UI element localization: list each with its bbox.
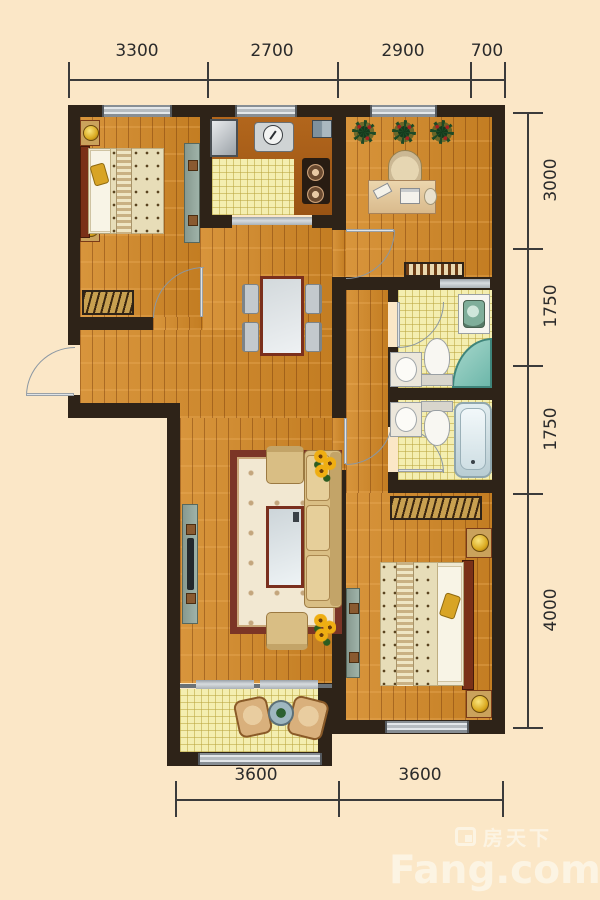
- flower-pot-icon: [314, 614, 336, 646]
- mouse-icon: [424, 188, 437, 205]
- entrance-door-leaf: [26, 393, 74, 396]
- bathtub-drain: [471, 460, 475, 464]
- dining-table-icon: [260, 276, 304, 356]
- dimension-tick: [513, 112, 543, 114]
- dimension-label: 3000: [542, 150, 560, 210]
- sink-basin: [395, 357, 417, 382]
- plant-icon: [392, 120, 416, 144]
- dimension-label: 700: [437, 42, 537, 60]
- burner-icon: [307, 164, 324, 181]
- study-door-leaf: [346, 229, 394, 232]
- dimension-tick: [68, 62, 70, 98]
- plant-icon: [352, 120, 376, 144]
- wardrobe-icon: [184, 143, 200, 243]
- window-kitchen: [235, 105, 297, 117]
- bathroom-south-door-leaf: [398, 469, 443, 472]
- wall-living-right-upper: [332, 278, 346, 418]
- tv-icon: [187, 538, 194, 590]
- wall-entry-step: [68, 403, 180, 418]
- wall-bathroom-left-4: [388, 472, 398, 480]
- chair-seat: [242, 322, 259, 352]
- toilet-icon: [424, 410, 450, 446]
- sink-basin: [395, 407, 417, 432]
- door-opening-patch: [153, 317, 203, 330]
- wall-cabinet-icon: [312, 120, 332, 138]
- dimension-tick: [502, 781, 504, 817]
- window-balcony: [198, 753, 322, 765]
- kitchen-sliding-door: [232, 217, 312, 225]
- floor-plan-page: 3300 2700 2900 700 3000 1750 1750 4000 3…: [0, 0, 600, 900]
- burner-icon: [307, 186, 324, 203]
- dimension-label: 3600: [370, 766, 470, 784]
- dimension-line: [527, 112, 529, 728]
- dimension-label: 2700: [222, 42, 322, 60]
- dimension-tick: [513, 493, 543, 495]
- plant-icon: [430, 120, 454, 144]
- printer-icon: [400, 188, 420, 204]
- dimension-tick: [513, 248, 543, 250]
- dining-chair-icon: [305, 322, 322, 352]
- hallway-door-leaf: [344, 418, 347, 464]
- dimension-tick: [470, 62, 472, 98]
- dimension-tick: [337, 62, 339, 98]
- sofa-cushion: [306, 505, 330, 551]
- dining-chair-icon: [305, 284, 322, 314]
- armchair-icon: [266, 612, 308, 650]
- dimension-label: 3600: [206, 766, 306, 784]
- window-bedroom-south: [385, 721, 469, 733]
- flower-pot-icon: [314, 450, 336, 482]
- wall-left-upper: [68, 105, 80, 345]
- blanket-stripe: [116, 148, 132, 234]
- dining-chair-icon: [242, 322, 259, 352]
- bathroom-north-transom: [440, 279, 490, 288]
- dimension-label: 1750: [542, 276, 560, 336]
- dimension-tick: [513, 727, 543, 729]
- pillow-icon: [436, 566, 462, 682]
- door-opening-patch: [332, 230, 346, 278]
- kitchen-floor: [212, 159, 294, 215]
- dimension-label: 4000: [542, 580, 560, 640]
- lamp-icon: [471, 695, 489, 713]
- watermark-cn-row: 房天下: [401, 822, 600, 851]
- dining-chair-icon: [242, 284, 259, 314]
- dimension-tick: [338, 781, 340, 817]
- kitchen-sink-icon: [210, 119, 238, 157]
- lamp-icon: [83, 125, 99, 141]
- wall-bedroom-north-bottom: [68, 317, 153, 330]
- watermark-en: Fang.com: [389, 851, 594, 892]
- window-bedroom-north: [102, 105, 172, 117]
- lamp-icon: [471, 534, 489, 552]
- dimension-line: [68, 79, 505, 81]
- balcony-table-icon: [268, 700, 294, 726]
- dimension-tick: [207, 62, 209, 98]
- dimension-label: 1750: [542, 399, 560, 459]
- entrance-door-arc: [26, 347, 75, 396]
- dimension-tick: [504, 62, 506, 98]
- remote-icon: [293, 512, 299, 522]
- dimension-label: 3300: [87, 42, 187, 60]
- bathroom-north-door-leaf: [397, 302, 400, 347]
- blanket-stripe: [396, 562, 414, 686]
- dimension-tick: [513, 365, 543, 367]
- sofa-cushion: [306, 555, 330, 601]
- wall-bathroom-left-1: [388, 290, 398, 302]
- window-study: [370, 105, 437, 117]
- dimension-tick: [175, 781, 177, 817]
- bedside-rug-icon: [390, 496, 482, 520]
- armchair-icon: [266, 446, 304, 484]
- toilet-icon: [424, 338, 450, 376]
- chair-seat: [242, 284, 259, 314]
- radiator-icon: [404, 262, 464, 277]
- dresser-icon: [346, 588, 360, 678]
- washing-machine-drum: [463, 300, 485, 328]
- wall-living-left: [167, 418, 180, 683]
- balcony-sliding-door: [260, 680, 318, 689]
- bedroom-north-door-leaf: [200, 267, 203, 317]
- balcony-sliding-door: [196, 680, 254, 689]
- wall-kitchen-study: [332, 105, 346, 230]
- toilet-tank: [421, 374, 453, 386]
- bedside-rug-icon: [82, 290, 134, 315]
- chair-seat: [305, 322, 322, 352]
- desk-chair-icon: [388, 150, 422, 183]
- fang-watermark: 房天下 Fang.com: [389, 822, 594, 892]
- chair-seat: [305, 284, 322, 314]
- wall-right: [492, 105, 505, 734]
- wall-kitchen-bottom-left: [200, 215, 232, 228]
- wall-bathroom-divider: [388, 388, 505, 400]
- watermark-cn: 房天下: [483, 822, 552, 851]
- fang-logo-icon: [455, 827, 476, 846]
- wall-bathroom-south-bottom: [388, 480, 505, 493]
